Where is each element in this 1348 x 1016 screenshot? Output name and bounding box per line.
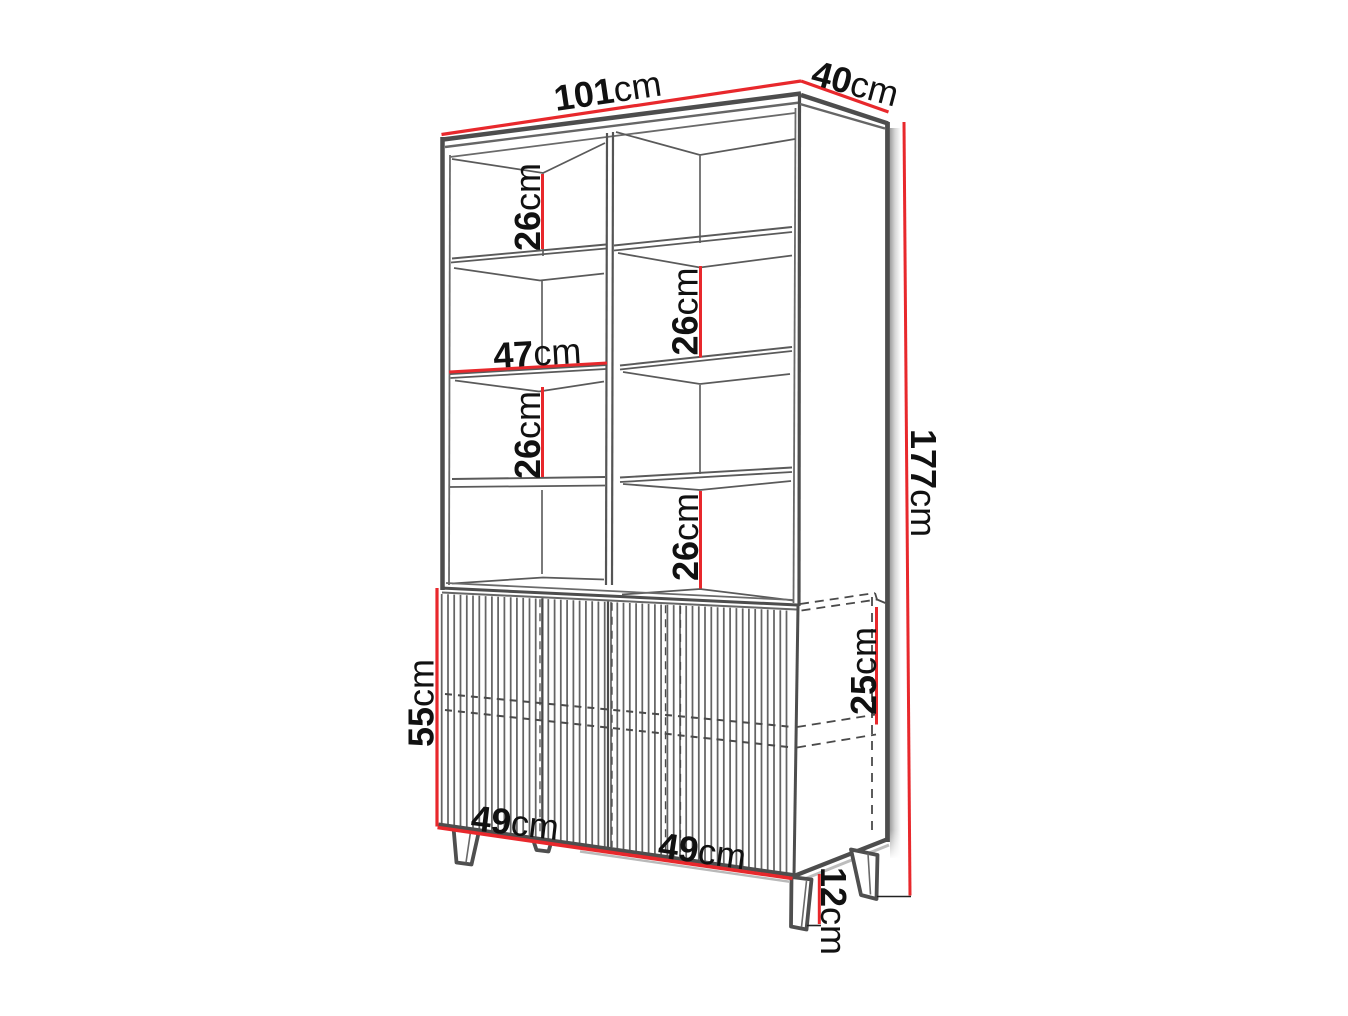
svg-text:26cm: 26cm — [665, 493, 706, 581]
svg-text:47cm: 47cm — [492, 330, 582, 376]
svg-text:55cm: 55cm — [401, 659, 442, 747]
svg-text:12cm: 12cm — [813, 867, 854, 955]
svg-text:101cm: 101cm — [551, 63, 664, 119]
svg-text:25cm: 25cm — [843, 627, 884, 715]
svg-text:49cm: 49cm — [469, 797, 561, 848]
svg-text:49cm: 49cm — [656, 824, 749, 877]
svg-text:26cm: 26cm — [507, 391, 548, 479]
svg-text:40cm: 40cm — [807, 52, 903, 114]
svg-text:26cm: 26cm — [665, 267, 706, 355]
svg-text:26cm: 26cm — [507, 163, 548, 251]
svg-text:177cm: 177cm — [903, 429, 944, 537]
